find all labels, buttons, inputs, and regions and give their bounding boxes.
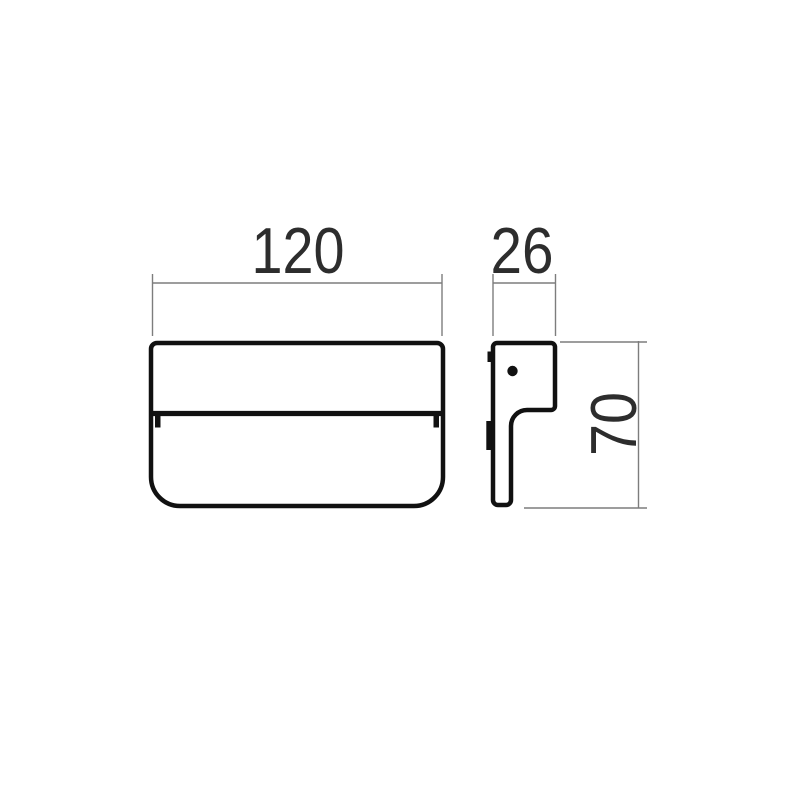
front-left-notch [155, 415, 161, 428]
front-view-outline [151, 343, 443, 506]
front-view [151, 343, 443, 506]
side-view [493, 343, 555, 505]
front-view-details [155, 415, 439, 428]
side-view-outline [493, 343, 555, 505]
depth-dim-label: 26 [491, 214, 554, 287]
front-right-notch [434, 415, 440, 428]
side-lower-edge-tab [486, 421, 491, 450]
side-upper-edge-tab [488, 352, 492, 363]
dimension-lines [153, 274, 648, 508]
width-dim-label: 120 [252, 214, 345, 287]
dimension-drawing: 120 26 70 [0, 0, 800, 800]
drawing-canvas: 120 26 70 [0, 0, 800, 800]
height-dim-label: 70 [577, 392, 650, 456]
mounting-hole [507, 366, 517, 376]
dimension-labels: 120 26 70 [252, 214, 651, 456]
